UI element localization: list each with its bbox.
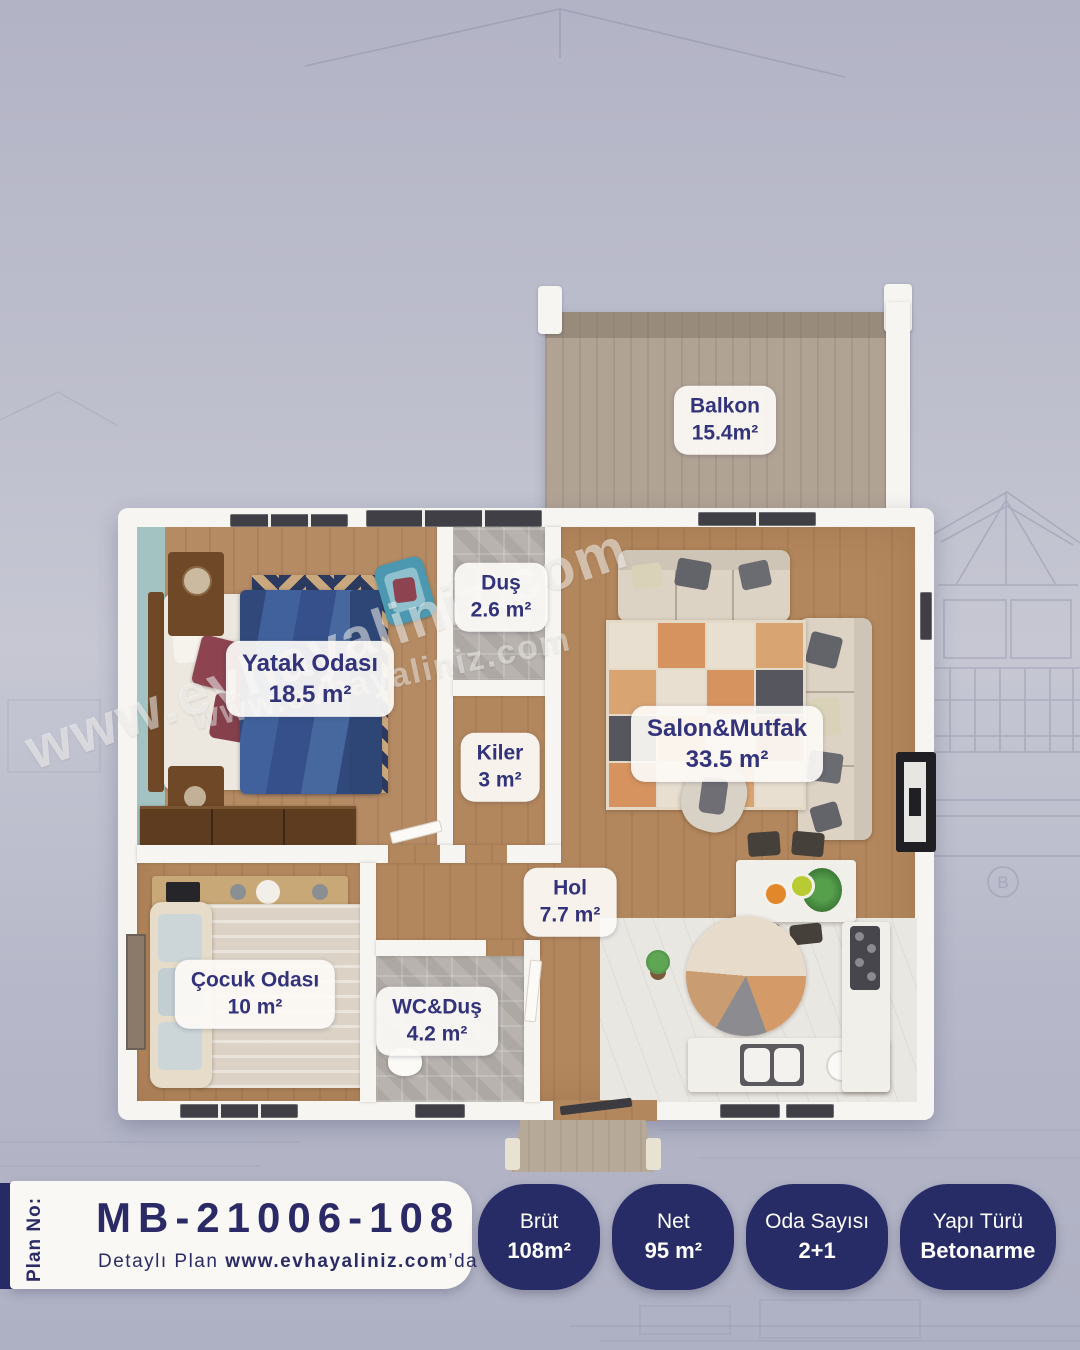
plan-code: MB-21006-108 <box>96 1194 466 1242</box>
stove <box>850 926 880 990</box>
door-gap-pantry <box>465 845 507 863</box>
room-name: Çocuk Odası <box>191 967 319 994</box>
fruit-bowl-green <box>792 876 812 896</box>
door-gap-bedroom <box>388 845 440 863</box>
stat-value: 2+1 <box>798 1238 835 1264</box>
poster-canvas: B <box>0 0 1080 1350</box>
room-name: Hol <box>540 875 601 902</box>
balcony-sliding-door <box>698 512 816 526</box>
room-area: 3 m² <box>477 767 524 794</box>
wall-bedroom-right <box>437 527 453 845</box>
window-kitchen-bottom-1 <box>720 1104 780 1118</box>
kids-wall-art <box>126 934 146 1050</box>
room-name: Salon&Mutfak <box>647 713 807 744</box>
room-name: Yatak Odası <box>242 648 378 679</box>
sofa-top <box>618 550 790 622</box>
stat-label: Brüt <box>520 1210 559 1234</box>
stat-label: Oda Sayısı <box>765 1210 869 1234</box>
detail-website: www.evhayaliniz.com <box>225 1251 448 1272</box>
door-gap-wc-top <box>486 940 526 956</box>
room-name: Balkon <box>690 393 760 420</box>
fireplace <box>896 752 936 852</box>
wall-shower-pantry <box>453 680 545 696</box>
detail-prefix: Detaylı Plan <box>98 1251 225 1272</box>
balcony-post-left <box>538 286 562 334</box>
entrance-porch <box>512 1120 654 1172</box>
wall-pantry-right <box>545 527 561 845</box>
window-living-right <box>920 592 932 640</box>
window-kitchen-bottom-2 <box>786 1104 834 1118</box>
bed-headboard <box>148 592 164 792</box>
room-label-hol: Hol 7.7 m² <box>524 868 617 937</box>
balcony-railing-band <box>545 312 907 338</box>
stat-brut: Brüt 108m² <box>478 1184 600 1290</box>
window-utility-top <box>366 510 542 527</box>
stat-label: Yapı Türü <box>933 1210 1023 1234</box>
stat-value: 95 m² <box>645 1238 702 1264</box>
room-area: 15.4m² <box>690 420 760 447</box>
room-label-yatak-odasi: Yatak Odası 18.5 m² <box>226 641 394 717</box>
porch-post-left <box>505 1138 520 1170</box>
plan-detail-line: Detaylı Plan www.evhayaliniz.com’da <box>98 1251 478 1273</box>
wardrobe <box>140 806 356 849</box>
kitchen-island <box>736 860 856 922</box>
room-name: Kiler <box>477 740 524 767</box>
room-area: 33.5 m² <box>647 744 807 775</box>
room-label-cocuk-odasi: Çocuk Odası 10 m² <box>175 960 335 1029</box>
room-label-salon-mutfak: Salon&Mutfak 33.5 m² <box>631 706 823 782</box>
detail-suffix: ’da <box>448 1251 478 1272</box>
room-area: 2.6 m² <box>471 597 532 624</box>
stat-oda-sayisi: Oda Sayısı 2+1 <box>746 1184 887 1290</box>
window-bedroom-top <box>230 514 348 527</box>
stat-net: Net 95 m² <box>612 1184 734 1290</box>
room-area: 10 m² <box>191 994 319 1021</box>
stat-value: 108m² <box>507 1238 571 1264</box>
balcony-side-wall <box>886 302 910 512</box>
window-kids-bottom <box>180 1104 298 1118</box>
room-label-dus: Duş 2.6 m² <box>455 563 548 632</box>
dining-chair-1 <box>747 831 781 857</box>
room-name: Duş <box>471 570 532 597</box>
window-wc-bottom <box>415 1104 465 1118</box>
fruit-bowl-orange <box>766 884 786 904</box>
room-label-balkon: Balkon 15.4m² <box>674 386 776 455</box>
stat-label: Net <box>657 1210 690 1234</box>
hall-plant <box>646 950 670 974</box>
stat-yapi-turu: Yapı Türü Betonarme <box>900 1184 1056 1290</box>
room-label-kiler: Kiler 3 m² <box>461 733 540 802</box>
room-area: 4.2 m² <box>392 1021 482 1048</box>
svg-text:B: B <box>997 873 1008 892</box>
nightstand-top <box>168 552 224 636</box>
room-area: 18.5 m² <box>242 679 378 710</box>
stat-value: Betonarme <box>920 1238 1035 1264</box>
room-name: WC&Duş <box>392 994 482 1021</box>
wall-kids-right <box>360 863 376 1102</box>
room-area: 7.7 m² <box>540 902 601 929</box>
sink-unit <box>740 1044 804 1086</box>
plan-no-label: Plan No: <box>24 1190 46 1282</box>
dining-chair-2 <box>791 831 825 858</box>
porch-post-right <box>646 1138 661 1170</box>
stats-pills: Brüt 108m² Net 95 m² Oda Sayısı 2+1 Yapı… <box>478 1184 1056 1290</box>
kitchen-counter-right <box>842 922 890 1092</box>
room-label-wc-dus: WC&Duş 4.2 m² <box>376 987 498 1056</box>
